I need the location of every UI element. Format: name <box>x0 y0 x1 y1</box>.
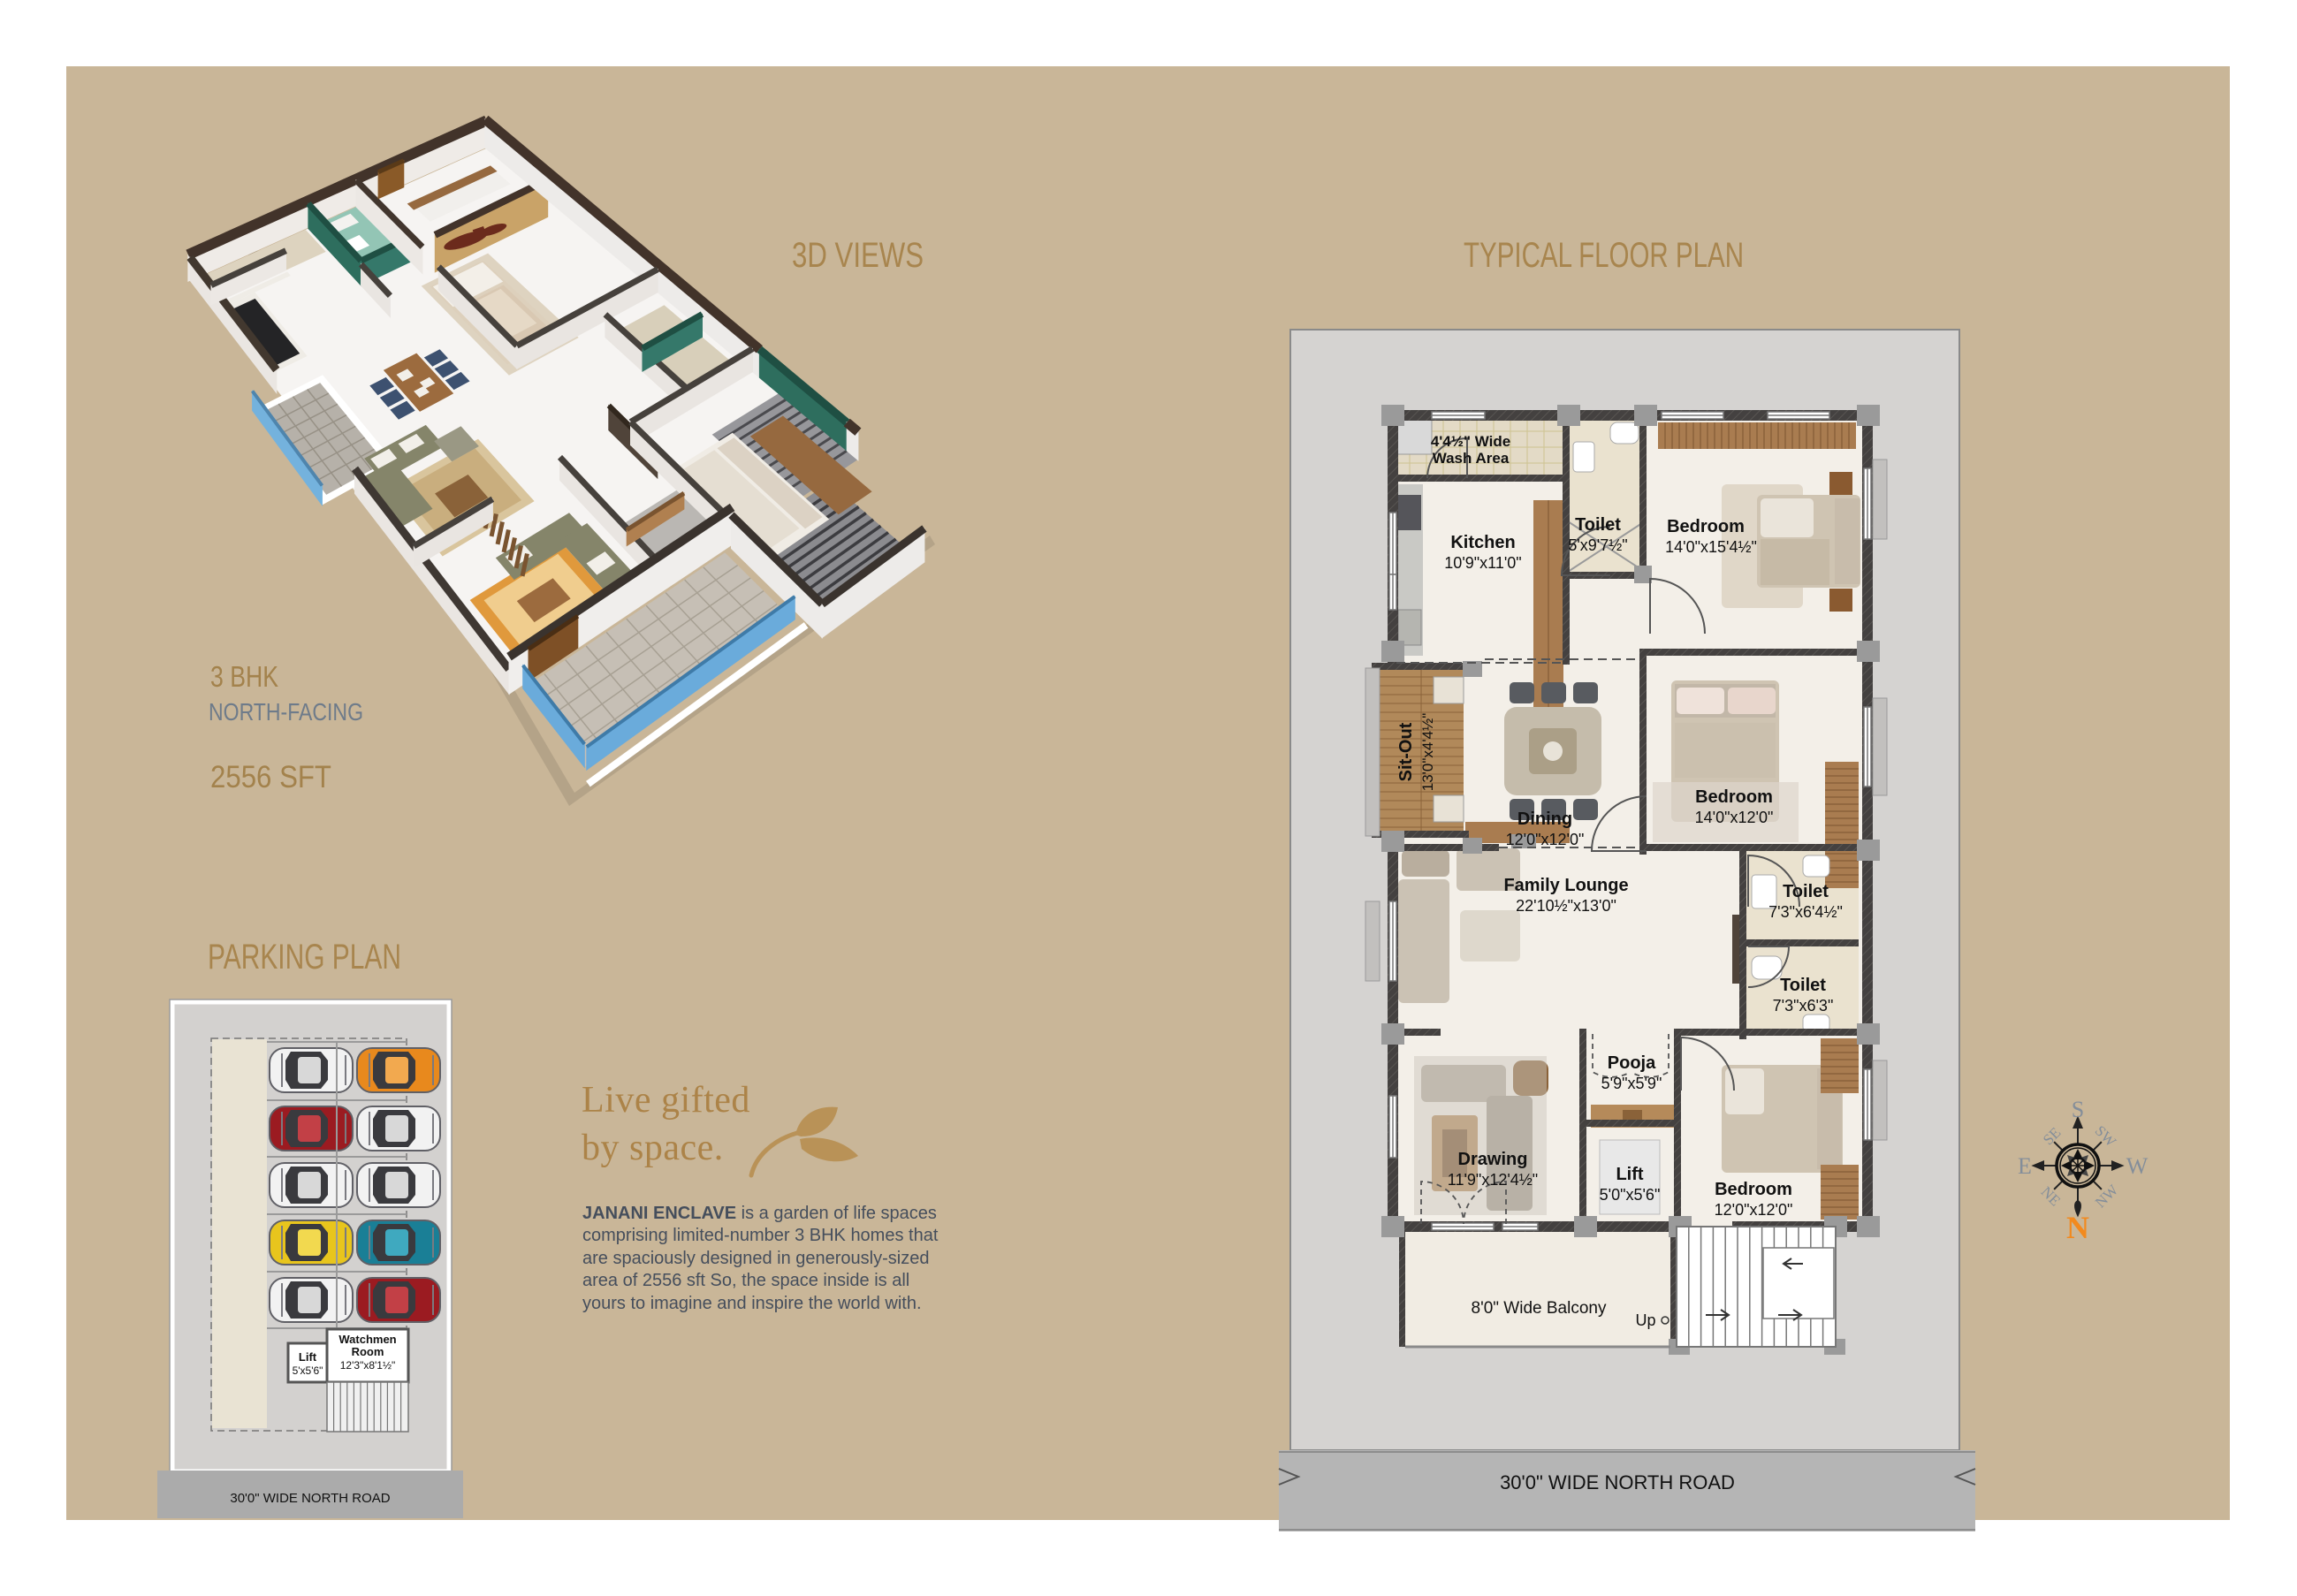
svg-text:comprising limited-number 3 BH: comprising limited-number 3 BHK homes th… <box>582 1226 939 1245</box>
svg-text:W: W <box>2126 1153 2149 1179</box>
svg-text:Wash Area: Wash Area <box>1433 450 1510 467</box>
svg-text:10'9"x11'0": 10'9"x11'0" <box>1444 554 1521 572</box>
svg-text:Pooja: Pooja <box>1608 1053 1656 1073</box>
svg-text:by space.: by space. <box>582 1128 724 1168</box>
svg-text:are spaciously designed in gen: are spaciously designed in generously-si… <box>582 1249 929 1268</box>
svg-text:Family Lounge: Family Lounge <box>1503 876 1628 895</box>
svg-text:Watchmen: Watchmen <box>338 1333 396 1346</box>
svg-text:Up: Up <box>1635 1311 1655 1329</box>
svg-text:7'3"x6'3": 7'3"x6'3" <box>1773 997 1834 1015</box>
svg-text:13'0"x4'4½": 13'0"x4'4½" <box>1419 713 1436 792</box>
svg-text:TYPICAL FLOOR PLAN: TYPICAL FLOOR PLAN <box>1464 236 1744 275</box>
svg-text:area of 2556 sft So, the space: area of 2556 sft So, the space inside is… <box>582 1271 909 1290</box>
svg-text:Live gifted: Live gifted <box>582 1080 750 1121</box>
svg-text:3 BHK: 3 BHK <box>210 660 278 693</box>
svg-text:Bedroom: Bedroom <box>1667 517 1745 536</box>
svg-text:Kitchen: Kitchen <box>1450 533 1515 552</box>
svg-text:S: S <box>2072 1097 2084 1122</box>
svg-text:2556 SFT: 2556 SFT <box>210 760 331 794</box>
svg-text:14'0"x15'4½": 14'0"x15'4½" <box>1665 538 1757 556</box>
svg-text:PARKING PLAN: PARKING PLAN <box>208 938 401 977</box>
svg-text:Sit-Out: Sit-Out <box>1396 722 1416 781</box>
svg-text:NORTH-FACING: NORTH-FACING <box>209 698 363 726</box>
svg-text:5'x5'6": 5'x5'6" <box>293 1364 323 1377</box>
svg-text:11'9"x12'4½": 11'9"x12'4½" <box>1448 1171 1538 1189</box>
svg-text:12'3"x8'1½": 12'3"x8'1½" <box>340 1359 395 1372</box>
svg-text:5'x9'7½": 5'x9'7½" <box>1568 536 1627 554</box>
svg-text:Toilet: Toilet <box>1575 515 1621 535</box>
svg-text:5'0"x5'6": 5'0"x5'6" <box>1600 1186 1661 1204</box>
svg-text:yours to imagine and inspire t: yours to imagine and inspire the world w… <box>582 1294 922 1313</box>
svg-text:14'0"x12'0": 14'0"x12'0" <box>1695 809 1774 826</box>
svg-text:JANANI ENCLAVE is a garden of: JANANI ENCLAVE is a garden of life space… <box>582 1204 937 1223</box>
svg-text:30'0" WIDE NORTH ROAD: 30'0" WIDE NORTH ROAD <box>230 1491 390 1506</box>
svg-text:E: E <box>2018 1153 2032 1179</box>
svg-text:3D VIEWS: 3D VIEWS <box>792 236 924 275</box>
svg-text:12'0"x12'0": 12'0"x12'0" <box>1715 1201 1793 1219</box>
svg-text:22'10½"x13'0": 22'10½"x13'0" <box>1516 897 1616 915</box>
svg-text:N: N <box>2066 1210 2089 1245</box>
svg-text:8'0" Wide Balcony: 8'0" Wide Balcony <box>1472 1299 1607 1318</box>
svg-text:Lift: Lift <box>1616 1165 1643 1184</box>
svg-text:Bedroom: Bedroom <box>1695 787 1773 807</box>
svg-text:Toilet: Toilet <box>1783 882 1829 901</box>
svg-text:5'9"x5'9": 5'9"x5'9" <box>1601 1075 1662 1092</box>
svg-text:Drawing: Drawing <box>1458 1150 1528 1169</box>
svg-text:12'0"x12'0": 12'0"x12'0" <box>1506 831 1585 848</box>
svg-text:Room: Room <box>352 1345 384 1358</box>
svg-text:7'3"x6'4½": 7'3"x6'4½" <box>1768 903 1843 921</box>
svg-text:Dining: Dining <box>1517 809 1572 829</box>
svg-text:30'0" WIDE NORTH ROAD: 30'0" WIDE NORTH ROAD <box>1500 1471 1735 1493</box>
svg-text:Bedroom: Bedroom <box>1715 1180 1792 1199</box>
svg-text:Lift: Lift <box>299 1350 317 1364</box>
svg-text:Toilet: Toilet <box>1780 976 1826 995</box>
svg-text:4'4½" Wide: 4'4½" Wide <box>1431 433 1510 450</box>
